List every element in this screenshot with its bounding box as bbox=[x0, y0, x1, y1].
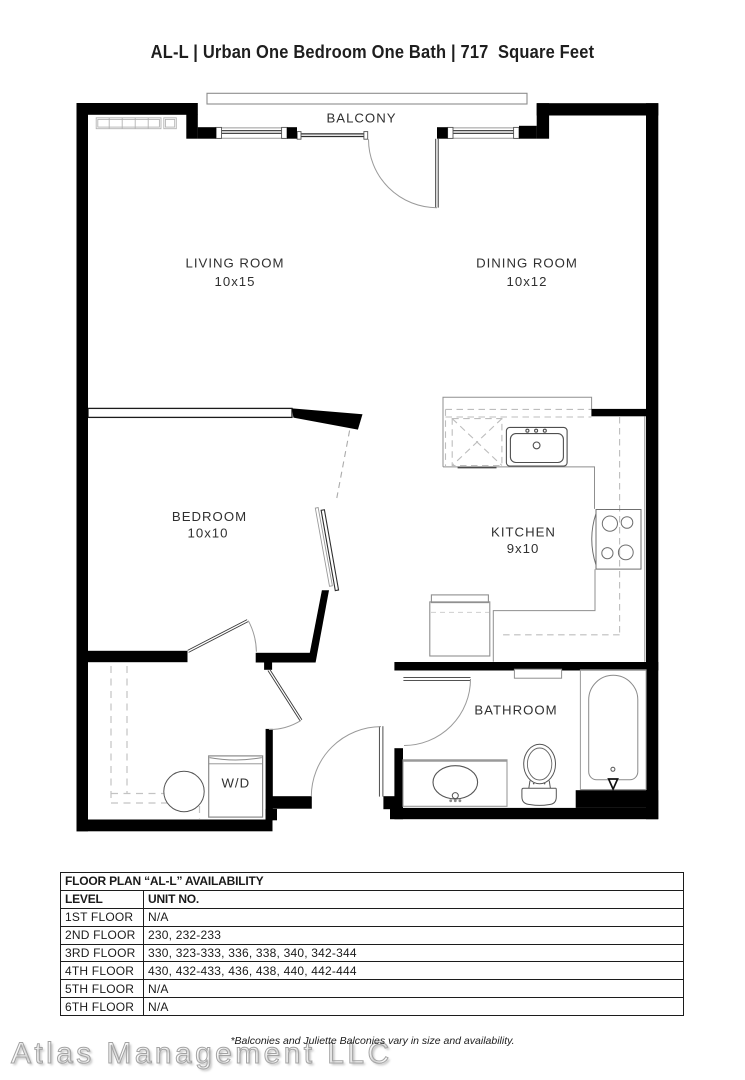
svg-text:10x10: 10x10 bbox=[188, 526, 229, 541]
svg-text:10x12: 10x12 bbox=[507, 274, 548, 289]
svg-text:LIVING ROOM: LIVING ROOM bbox=[186, 256, 285, 271]
svg-text:10x15: 10x15 bbox=[215, 274, 256, 289]
svg-text:9x10: 9x10 bbox=[507, 541, 540, 556]
svg-text:BEDROOM: BEDROOM bbox=[172, 509, 247, 524]
svg-text:BATHROOM: BATHROOM bbox=[474, 703, 557, 718]
svg-text:KITCHEN: KITCHEN bbox=[491, 525, 556, 540]
svg-text:DINING ROOM: DINING ROOM bbox=[476, 256, 578, 271]
svg-text:BALCONY: BALCONY bbox=[326, 111, 396, 126]
svg-text:W/D: W/D bbox=[221, 775, 250, 790]
